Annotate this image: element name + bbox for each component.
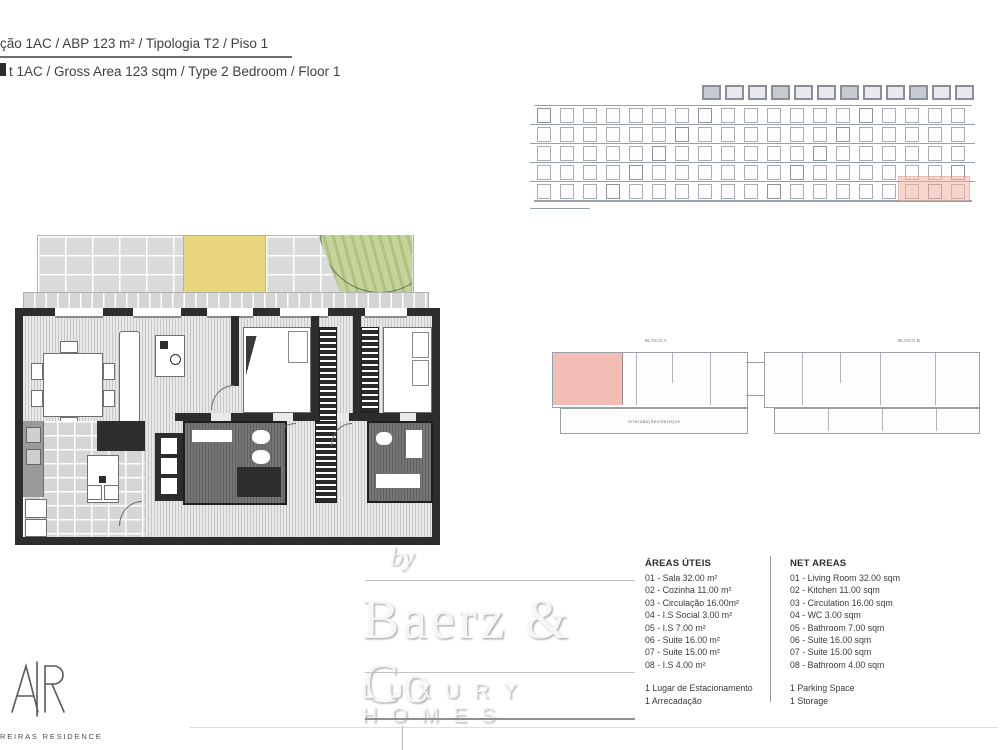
list-item: 06 - Suite 16.00 sqm — [790, 634, 940, 646]
storage-label: Arrecadações/Serviços — [628, 419, 681, 424]
elevation-window — [606, 165, 620, 180]
appliance — [26, 427, 41, 443]
kitchen-wall-stub — [97, 421, 145, 451]
elevation-unit-highlight — [898, 176, 970, 202]
elevation-window — [698, 127, 712, 142]
elevation-window — [767, 146, 781, 161]
elevation-window — [813, 108, 827, 123]
elevation-window — [859, 127, 873, 142]
baerz-watermark: by Baerz & Co LUXURY HOMES — [360, 540, 640, 725]
sink-icon — [99, 476, 106, 483]
elevation-window — [836, 127, 850, 142]
window-opening — [280, 308, 328, 318]
site-partition — [840, 353, 841, 383]
bed-suite-1 — [243, 327, 311, 413]
elevation-window — [629, 184, 643, 199]
elevation-window — [928, 146, 942, 161]
elevation-window — [583, 165, 597, 180]
site-partition — [802, 353, 803, 405]
elevation-window — [882, 127, 896, 142]
elevation-window — [652, 127, 666, 142]
site-partition — [828, 409, 829, 431]
elevation-window — [537, 165, 551, 180]
elevation-window — [583, 127, 597, 142]
site-block-b — [764, 352, 980, 408]
list-extra: 1 Arrecadação — [645, 695, 770, 707]
elevation-window — [560, 165, 574, 180]
elevation-roof-detail — [932, 85, 951, 100]
pillow — [412, 360, 429, 386]
elevation-window — [767, 108, 781, 123]
elevation-window — [629, 127, 643, 142]
list-extra: 1 Parking Space — [790, 682, 940, 694]
list-item: 07 - Suite 15.00 m² — [645, 646, 770, 658]
list-item: 07 - Suite 15.00 sqm — [790, 646, 940, 658]
elevation-window — [675, 184, 689, 199]
elevation-window — [790, 127, 804, 142]
elevation-window — [767, 165, 781, 180]
elevation-window — [583, 184, 597, 199]
closet-shelf — [161, 458, 177, 474]
areas-uteis-title: ÁREAS ÚTEIS — [645, 558, 770, 569]
door-gap — [400, 413, 416, 421]
closet-shelf — [161, 438, 177, 454]
toilet — [251, 429, 271, 445]
elevation-window — [905, 127, 919, 142]
bathroom-1 — [183, 421, 287, 505]
list-item: 02 - Cozinha 11.00 m² — [645, 584, 770, 596]
elevation-window — [698, 108, 712, 123]
console-item — [170, 354, 181, 365]
residence-name: REIRAS RESIDENCE — [0, 732, 103, 741]
elevation-window — [744, 146, 758, 161]
sink-counter — [405, 429, 423, 459]
terrace-sand-area — [183, 235, 267, 297]
kitchen-unit — [104, 485, 119, 500]
unit-title-en: t 1AC / Gross Area 123 sqm / Type 2 Bedr… — [9, 64, 340, 79]
elevation-window — [560, 146, 574, 161]
dining-chair — [103, 363, 115, 380]
kitchen-counter — [23, 421, 44, 497]
elevation-roof-detail — [840, 85, 859, 100]
list-item: 04 - WC 3.00 sqm — [790, 609, 940, 621]
brochure-page: ção 1AC / ABP 123 m² / Tipologia T2 / Pi… — [0, 0, 1000, 750]
site-lower-strip — [774, 408, 980, 434]
kitchen-unit — [87, 485, 102, 500]
window-opening — [55, 308, 103, 318]
elevation-window — [606, 146, 620, 161]
elevation-window — [905, 146, 919, 161]
site-partition — [935, 353, 936, 405]
elevation-window — [721, 127, 735, 142]
site-partition — [882, 409, 883, 431]
elevation-window — [675, 146, 689, 161]
elevation-window — [859, 146, 873, 161]
elevation-window — [537, 146, 551, 161]
elevation-window — [882, 146, 896, 161]
pillow — [412, 332, 429, 358]
dining-chair — [60, 341, 78, 353]
elevation-window — [813, 184, 827, 199]
areas-uteis-list: ÁREAS ÚTEIS 01 - Sala 32.00 m² 02 - Cozi… — [645, 558, 770, 707]
elevation-window — [836, 165, 850, 180]
elevation-window — [882, 165, 896, 180]
footer-fold-mark — [402, 726, 403, 750]
list-item: 05 - Bathroom 7.00 sqm — [790, 622, 940, 634]
site-partition — [672, 353, 673, 383]
list-item: 02 - Kitchen 11.00 sqm — [790, 584, 940, 596]
elevation-window — [652, 165, 666, 180]
elevation-window — [698, 165, 712, 180]
elevation-window — [537, 184, 551, 199]
partition-wall — [353, 316, 361, 413]
partition-wall — [311, 316, 319, 413]
bathtub — [191, 429, 233, 443]
elevation-window — [698, 184, 712, 199]
dining-chair — [31, 390, 43, 407]
elevation-roof-detail — [748, 85, 767, 100]
elevation-window — [606, 184, 620, 199]
elevation-window — [744, 108, 758, 123]
site-partition — [710, 353, 711, 405]
elevation-window — [721, 146, 735, 161]
elevation-window — [859, 108, 873, 123]
elevation-window — [813, 165, 827, 180]
sofa — [119, 331, 140, 425]
elevation-roof-detail — [863, 85, 882, 100]
watermark-rule-mid — [365, 672, 635, 673]
elevation-window — [836, 108, 850, 123]
elevation-roof-detail — [794, 85, 813, 100]
elevation-window — [537, 127, 551, 142]
utility-closet — [155, 433, 183, 501]
net-areas-title: NET AREAS — [790, 558, 940, 569]
elevation-window — [629, 146, 643, 161]
elevation-window — [767, 184, 781, 199]
elevation-window — [698, 146, 712, 161]
elevation-window — [652, 108, 666, 123]
elevation-window — [882, 184, 896, 199]
list-item: 08 - Bathroom 4.00 sqm — [790, 659, 940, 671]
toilet — [375, 431, 393, 446]
pillow — [288, 331, 308, 363]
blanket-fold — [246, 336, 260, 396]
dining-table — [43, 353, 103, 417]
elevation-window — [606, 108, 620, 123]
elevation-window — [629, 108, 643, 123]
shower-enclosure — [237, 467, 281, 497]
site-storage-strip: Arrecadações/Serviços — [560, 408, 748, 434]
lists-divider — [770, 556, 771, 702]
elevation-window — [583, 108, 597, 123]
elevation-roof-detail — [955, 85, 974, 100]
door-gap — [211, 413, 231, 421]
elevation-window — [859, 184, 873, 199]
list-item: 03 - Circulação 16.00m² — [645, 597, 770, 609]
list-item: 06 - Suite 16.00 m² — [645, 634, 770, 646]
elevation-window — [813, 127, 827, 142]
block-a-label: BLOCO A — [645, 338, 667, 343]
net-areas-list: NET AREAS 01 - Living Room 32.00 sqm 02 … — [790, 558, 940, 707]
terrace-paving-left — [37, 235, 185, 297]
elevation-window — [675, 108, 689, 123]
elevation-window — [583, 146, 597, 161]
media-console — [155, 335, 185, 377]
elevation-window — [882, 108, 896, 123]
elevation-window — [675, 165, 689, 180]
elevation-window — [859, 165, 873, 180]
watermark-tagline: LUXURY HOMES — [362, 680, 640, 728]
floor-plan — [15, 235, 440, 545]
elevation-window — [721, 184, 735, 199]
appliance — [26, 449, 41, 465]
elevation-window — [951, 146, 965, 161]
kitchen-unit — [25, 499, 47, 518]
block-b-label: BLOCO B — [898, 338, 920, 343]
watermark-by: by — [390, 542, 415, 572]
elevation-window — [905, 108, 919, 123]
elevation-window — [951, 108, 965, 123]
closet-shelf — [161, 478, 177, 494]
elevation-window — [744, 165, 758, 180]
elevation-roof-detail — [909, 85, 928, 100]
list-item: 01 - Living Room 32.00 sqm — [790, 572, 940, 584]
elevation-window — [721, 108, 735, 123]
site-partition — [880, 353, 881, 405]
elevation-window — [721, 165, 735, 180]
elevation-roof-detail — [725, 85, 744, 100]
wardrobe — [361, 327, 379, 413]
elevation-window — [767, 127, 781, 142]
elevation-window — [790, 165, 804, 180]
window-opening — [133, 308, 181, 318]
elevation-window — [744, 184, 758, 199]
site-partition — [636, 353, 637, 405]
door-gap — [273, 413, 293, 421]
elevation-window — [790, 184, 804, 199]
elevation-window — [928, 127, 942, 142]
elevation-window — [560, 108, 574, 123]
list-extra: 1 Lugar de Estacionamento — [645, 682, 770, 694]
ar-monogram-icon — [4, 658, 74, 720]
elevation-roof-detail — [817, 85, 836, 100]
dining-chair — [31, 363, 43, 380]
watermark-rule-bottom — [365, 718, 635, 720]
list-extra: 1 Storage — [790, 695, 940, 707]
list-item: 01 - Sala 32.00 m² — [645, 572, 770, 584]
dining-chair — [103, 390, 115, 407]
elevation-window — [675, 127, 689, 142]
site-connector — [746, 362, 764, 396]
header-divider — [0, 56, 292, 58]
elevation-roof-detail — [886, 85, 905, 100]
ar-monogram — [4, 658, 74, 720]
bathtub — [375, 473, 421, 489]
window-opening — [365, 308, 407, 318]
elevation-window — [790, 108, 804, 123]
elevation-roof-detail — [771, 85, 790, 100]
partition-wall — [231, 316, 239, 386]
elevation-window — [560, 127, 574, 142]
unit-title-pt: ção 1AC / ABP 123 m² / Tipologia T2 / Pi… — [0, 36, 268, 51]
site-plan: BLOCO A BLOCO B Arrecadações/Serviços — [550, 336, 980, 436]
elevation-window — [951, 127, 965, 142]
list-item: 08 - I.S 4.00 m² — [645, 659, 770, 671]
kitchen-unit — [25, 519, 47, 537]
elevation-window — [606, 127, 620, 142]
console-item — [160, 341, 168, 349]
list-item: 03 - Circulation 16.00 sqm — [790, 597, 940, 609]
bidet — [251, 449, 271, 465]
list-item: 04 - I.S Social 3.00 m² — [645, 609, 770, 621]
elevation-window — [560, 184, 574, 199]
building-elevation — [530, 63, 975, 215]
watermark-rule-top — [365, 580, 635, 581]
bathroom-2 — [367, 421, 433, 503]
elevation-window — [629, 165, 643, 180]
elevation-window — [744, 127, 758, 142]
elevation-window — [928, 108, 942, 123]
elevation-window — [836, 184, 850, 199]
footer-faint-line — [190, 727, 998, 728]
elevation-roof-detail — [702, 85, 721, 100]
bed-suite-2 — [383, 327, 432, 413]
list-item: 05 - I.S 7.00 m² — [645, 622, 770, 634]
site-partition — [936, 409, 937, 431]
elevation-window — [813, 146, 827, 161]
elevation-window — [652, 184, 666, 199]
header-edge-mark — [0, 63, 6, 76]
window-opening — [207, 308, 253, 318]
site-unit-highlight — [553, 353, 623, 405]
elevation-window — [652, 146, 666, 161]
elevation-window — [537, 108, 551, 123]
elevation-window — [790, 146, 804, 161]
elevation-window — [836, 146, 850, 161]
